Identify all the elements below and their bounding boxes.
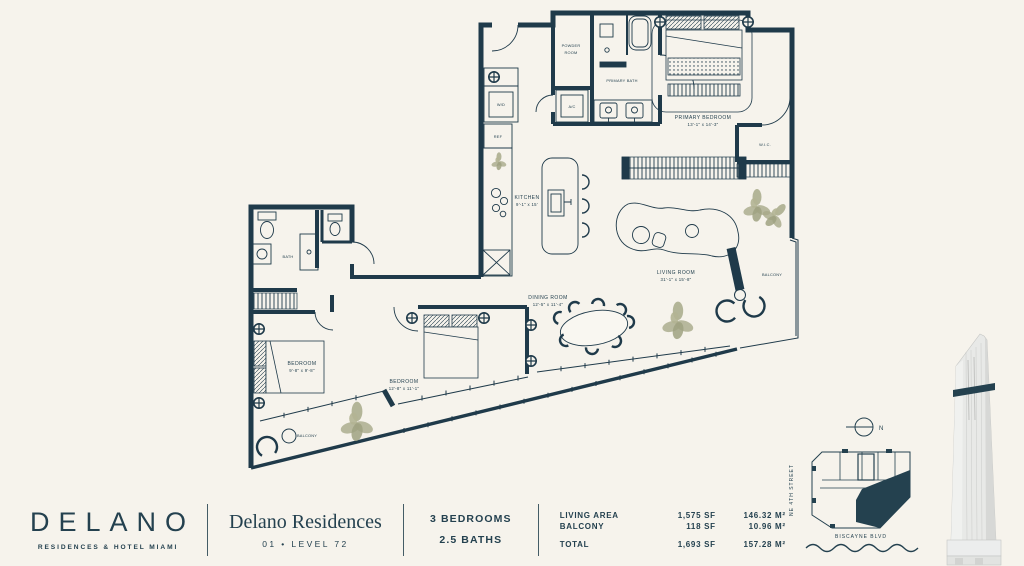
room-label-dining: DINING ROOM (528, 295, 567, 301)
toilet-icon (258, 212, 276, 220)
toilet-icon (328, 214, 342, 221)
svg-text:12'-8" x 11'-1": 12'-8" x 11'-1" (389, 386, 420, 391)
primary-bed-icon (652, 16, 752, 112)
street-label-bottom: BISCAYNE BLVD (835, 534, 887, 540)
brochure-page: POWDER ROOM PRIMARY BATH A/C W/D REF PRI… (0, 0, 1024, 566)
entry-door-arc (492, 25, 518, 51)
bedroom2-bed-icon (254, 341, 324, 393)
building-rendering (947, 334, 1001, 565)
area-row-balcony: BALCONY 118 SF 10.96 M² (560, 522, 786, 531)
svg-text:ROOM: ROOM (565, 50, 578, 55)
room-label-primary-bath: PRIMARY BATH (606, 78, 637, 83)
residence-title: Delano Residences (229, 511, 382, 534)
footer: DELANO RESIDENCES & HOTEL MIAMI Delano R… (30, 504, 786, 556)
divider (538, 504, 539, 556)
sink-icon (626, 103, 643, 118)
column-marker-icon (489, 72, 499, 82)
svg-text:N: N (879, 426, 883, 432)
unit-highlight (856, 470, 910, 528)
column-marker-icon (655, 17, 665, 27)
svg-text:13'-1" x 14'-3": 13'-1" x 14'-3" (688, 122, 719, 127)
key-plan: N NE 4TH STREET BISCAYNE BLVD (789, 418, 918, 552)
area-table: LIVING AREA 1,575 SF 146.32 M² BALCONY 1… (560, 508, 786, 552)
divider (403, 504, 404, 556)
room-labels: POWDER ROOM PRIMARY BATH A/C W/D REF PRI… (283, 43, 783, 438)
north-arrow-icon: N (846, 418, 883, 436)
room-label-primary-bedroom: PRIMARY BEDROOM (675, 115, 732, 121)
room-label-ref: REF (494, 134, 503, 139)
room-label-ac: A/C (568, 104, 575, 109)
room-label-powder: POWDER (562, 43, 581, 48)
kitchen-island (542, 158, 578, 254)
column-marker-icon (479, 313, 489, 323)
room-label-balcony-left: BALCONY (297, 433, 317, 438)
stool-icon (582, 223, 589, 237)
water-waves-icon (806, 545, 918, 552)
bedroom3-bed-icon (424, 315, 478, 378)
room-label-living: LIVING ROOM (657, 270, 695, 276)
sink-icon (253, 244, 271, 264)
column-marker-icon (526, 356, 536, 366)
stool-icon (582, 199, 589, 213)
kitchen-fixtures (481, 68, 589, 276)
area-row-living: LIVING AREA 1,575 SF 146.32 M² (560, 511, 786, 520)
balcony-right-furniture (712, 290, 768, 326)
sink-icon (600, 103, 617, 118)
room-label-balcony-right: BALCONY (762, 272, 782, 277)
column-marker-icon (407, 313, 417, 323)
plant-icon (491, 152, 507, 170)
divider (207, 504, 208, 556)
room-label-bedroom3: BEDROOM (390, 379, 419, 385)
room-label-bath: BATH (283, 254, 294, 259)
room-label-wd: W/D (497, 102, 505, 107)
bath-fixtures (253, 212, 342, 309)
sofa-icon (616, 203, 739, 257)
room-label-kitchen: KITCHEN (514, 195, 539, 201)
column-marker-icon (526, 320, 536, 330)
area-row-total: TOTAL 1,693 SF 157.28 M² (560, 540, 786, 549)
closet-icon (253, 293, 297, 309)
column-marker-icon (743, 17, 753, 27)
svg-text:9'-1" x 15': 9'-1" x 15' (516, 202, 538, 207)
plant-icon (661, 302, 695, 341)
floor-plan: POWDER ROOM PRIMARY BATH A/C W/D REF PRI… (0, 0, 1024, 566)
plant-icon (757, 197, 794, 235)
brand-logo: DELANO RESIDENCES & HOTEL MIAMI (30, 509, 186, 551)
svg-text:12'-5" x 11'-4": 12'-5" x 11'-4" (533, 302, 564, 307)
residence-block: Delano Residences 01 • LEVEL 72 (229, 511, 382, 549)
ottoman-icon (633, 227, 650, 244)
column-marker-icon (254, 324, 264, 334)
cooktop-icon (491, 188, 500, 197)
balcony-left-furniture (253, 429, 296, 461)
unit-level-label: 01 • LEVEL 72 (229, 539, 382, 549)
coffee-table-icon (686, 225, 699, 238)
svg-text:9'-8" x 9'-8": 9'-8" x 9'-8" (289, 368, 315, 373)
brand-name: DELANO (30, 509, 195, 536)
column-marker-icon (254, 398, 264, 408)
bed-bath-config: 3 BEDROOMS 2.5 BATHS (425, 509, 517, 551)
room-label-wic: W.I.C. (759, 142, 771, 147)
svg-text:31'-1" x 15'-8": 31'-1" x 15'-8" (661, 277, 692, 282)
shower-head-icon (605, 48, 609, 52)
plant-icon (339, 402, 374, 442)
bedrooms-label: 3 BEDROOMS (425, 509, 517, 530)
baths-label: 2.5 BATHS (425, 530, 517, 551)
brand-tagline: RESIDENCES & HOTEL MIAMI (30, 544, 186, 551)
room-label-bedroom2: BEDROOM (288, 361, 317, 367)
stool-icon (582, 175, 589, 189)
street-label-side: NE 4TH STREET (789, 464, 795, 516)
dining-table-icon (553, 298, 635, 355)
